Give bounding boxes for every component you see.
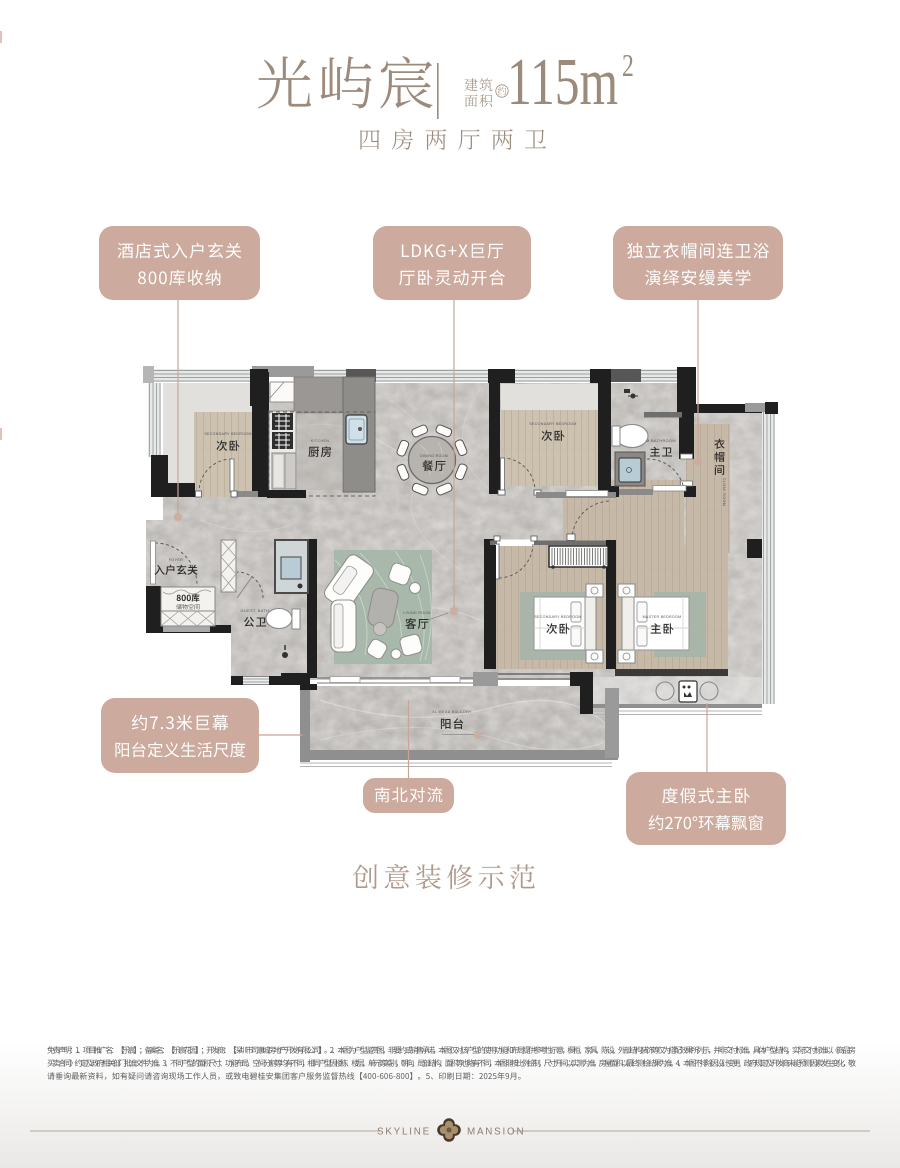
svg-text:SECONDARY BEDROOM: SECONDARY BEDROOM: [529, 422, 576, 426]
svg-text:115m: 115m: [507, 44, 618, 119]
svg-text:SKYLINE: SKYLINE: [377, 1127, 431, 1138]
svg-text:DINING ROOM: DINING ROOM: [420, 454, 448, 458]
svg-text:MANSION: MANSION: [467, 1127, 525, 1138]
svg-text:MASTER BEDROOM: MASTER BEDROOM: [643, 615, 682, 619]
svg-text:XL MEGA BALCONY: XL MEGA BALCONY: [432, 710, 472, 714]
svg-text:2: 2: [622, 49, 634, 84]
svg-text:M.BATHROOM: M.BATHROOM: [646, 439, 676, 443]
svg-text:KITCHEN: KITCHEN: [311, 439, 330, 443]
svg-text:SECONDARY BEDROOM: SECONDARY BEDROOM: [534, 615, 581, 619]
svg-text:GUEST BATH: GUEST BATH: [241, 609, 270, 613]
svg-text:FOYER: FOYER: [169, 558, 183, 562]
svg-text:LIVING ROOM: LIVING ROOM: [403, 611, 430, 615]
svg-text:SECONDARY BEDROOM: SECONDARY BEDROOM: [204, 432, 251, 436]
svg-text:CLOAK ROOM: CLOAK ROOM: [722, 478, 726, 506]
